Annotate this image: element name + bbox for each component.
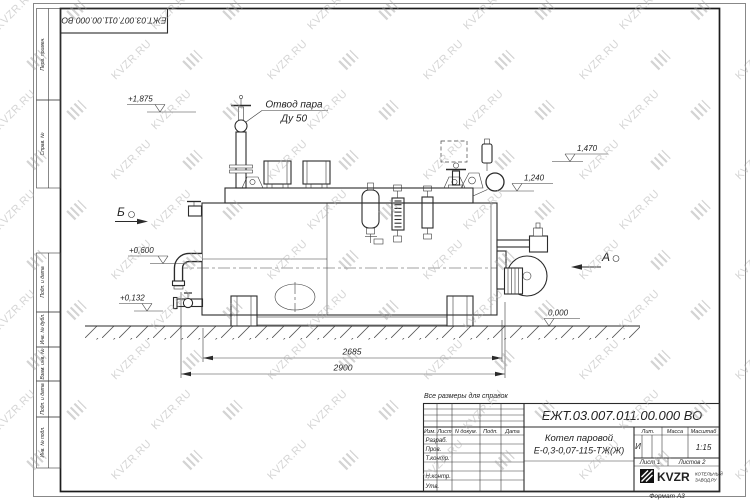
elevation-value: +0,132 [120, 294, 145, 303]
view-b-label: Б [117, 205, 125, 219]
elevation-value: +1,875 [128, 95, 153, 104]
steam-collector-platform [225, 177, 473, 203]
inverted-designation-box: ЕЖТ.03.007.011.00.000 ВО [61, 9, 168, 34]
view-a-label: А [601, 250, 610, 264]
elevation-mark-1875: +1,875 [127, 95, 196, 113]
side-stamp: Перв. примен. Справ. № Подп. и дата Инв.… [37, 9, 61, 469]
drawing-canvas: Перв. примен. Справ. № Подп. и дата Инв.… [0, 0, 750, 500]
boiler-supports [231, 296, 473, 326]
ground-line [85, 326, 640, 340]
side-stamp-label: Инв. № дубл. [40, 314, 46, 345]
col-list: Лист [436, 429, 452, 435]
col-izm: Изм. [424, 429, 436, 435]
inverted-doc-number: ЕЖТ.03.007.011.00.000 ВО [61, 16, 166, 26]
scale-header: Масштаб [691, 429, 718, 435]
lifting-lug [242, 177, 263, 188]
pressure-gauge-siphon [473, 139, 504, 196]
elevation-value: +0,600 [129, 246, 154, 255]
scale-value: 1:15 [696, 443, 712, 452]
elevation-mark-0000: 0,000 [544, 309, 580, 327]
side-stamp-label: Перв. примен. [40, 37, 46, 70]
steam-outlet-label: Отвод пара [265, 100, 323, 111]
view-marker-b: Б [115, 205, 148, 224]
row-nkontr: Н.контр. [426, 474, 451, 480]
col-podp: Подп. [483, 429, 498, 435]
drawing-sheet: Перв. примен. Справ. № Подп. и дата Инв.… [0, 0, 750, 500]
elevation-value: 1,240 [524, 174, 545, 183]
side-stamp-label: Инв. № подл. [40, 426, 46, 457]
drain-valve [183, 298, 192, 307]
col-data: Дата [504, 429, 520, 435]
logo-sub2: ЗАВОД.РУ [695, 478, 718, 483]
steam-outlet-dn-label: Ду 50 [280, 114, 307, 125]
boiler-shell [176, 203, 514, 315]
revision-table: Изм. Лист N докум. Подп. Дата Разраб. Пр… [424, 404, 525, 492]
steam-valve [235, 120, 247, 132]
side-stamp-label: Взам. инв. № [40, 348, 46, 380]
row-utv: Утв. [425, 484, 440, 490]
elevation-value: 1,470 [577, 144, 598, 153]
sheets-total: Листов 2 [678, 460, 707, 466]
side-stamp-label: Подп. и дата [40, 266, 46, 298]
format-label: Формат А3 [649, 493, 685, 500]
side-valve [189, 206, 202, 216]
elevation-mark-1470: 1,470 [552, 144, 608, 162]
steam-outlet-callout: Отвод пара Ду 50 [246, 100, 328, 125]
elevation-mark-0132: +0,132 [119, 294, 163, 312]
mass-header: Масса [667, 429, 683, 435]
gauge-column [422, 197, 433, 228]
logo-sub1: КОТЕЛЬНЫЙ [695, 472, 723, 477]
lit-value: И [635, 442, 641, 451]
steam-outlet-pipe [230, 95, 253, 188]
row-prov: Пров. [426, 447, 442, 453]
product-name: Котел паровой [545, 433, 614, 444]
logo-name: KVZR [657, 470, 690, 484]
doc-number: ЕЖТ.03.007.011.00.000 ВО [542, 408, 703, 423]
level-instruments [362, 183, 433, 244]
title-block: ЕЖТ.03.007.011.00.000 ВО Котел паровой Е… [424, 404, 724, 492]
lit-header: Лит. [641, 429, 655, 435]
side-stamp-label: Подп. и дата [40, 383, 46, 415]
row-razrab: Разраб. [426, 438, 448, 444]
dim-2900-value: 2900 [333, 363, 353, 373]
elevation-value: 0,000 [548, 309, 569, 318]
reference-note: Все размеры для справок [424, 392, 509, 400]
product-model: Е-0,3-0,07-115-ТЖ(Ж) [534, 446, 624, 456]
side-stamp-label: Справ. № [40, 132, 46, 155]
dim-2685-value: 2685 [342, 347, 362, 357]
burner-unit [497, 223, 548, 296]
separator-vessel [362, 190, 379, 228]
company-logo: KVZR КОТЕЛЬНЫЙ ЗАВОД.РУ [640, 469, 723, 484]
row-tkontr: Т.контр. [426, 456, 450, 462]
elevation-mark-1240: 1,240 [500, 174, 553, 192]
phantom-outline [441, 141, 467, 162]
motor-fins [505, 268, 523, 294]
col-ndoc: N докум. [455, 429, 477, 435]
left-fittings [173, 202, 203, 309]
view-marker-a: А [571, 250, 619, 270]
top-hatch-boxes [264, 161, 330, 188]
sheet-number: Лист 1 [639, 460, 660, 466]
